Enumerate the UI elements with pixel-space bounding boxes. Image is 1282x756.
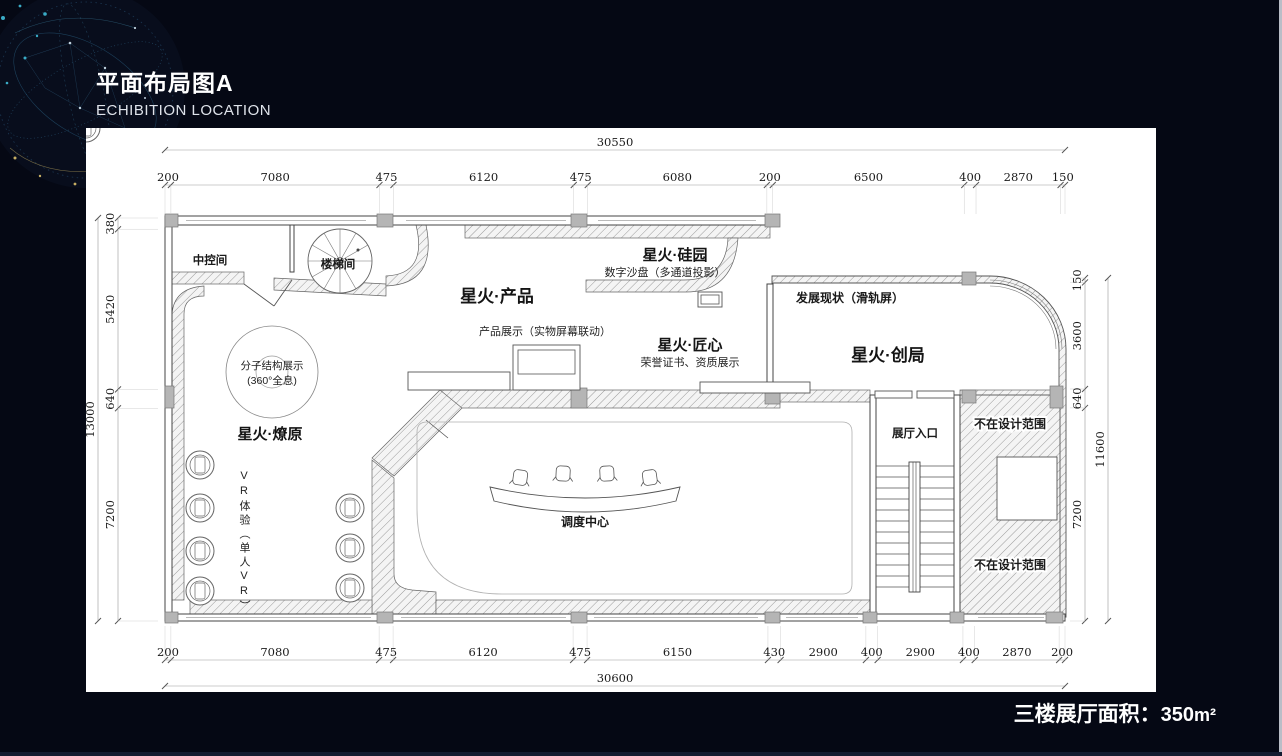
footer-area-label: 三楼展厅面积： xyxy=(1014,703,1161,726)
bottom-edge-strip xyxy=(0,752,1282,756)
footer-area-note: 三楼展厅面积：350m² xyxy=(1014,698,1216,728)
dispatch-console-desk xyxy=(490,487,680,512)
out-of-scope-inner-room xyxy=(997,457,1057,520)
label-dispatch-center: 调度中心 xyxy=(561,514,609,529)
dim-label: 200 xyxy=(759,170,781,184)
footer-area-unit: m² xyxy=(1194,705,1216,725)
dim-label: 11600 xyxy=(1093,431,1107,468)
dimension-column-right-segments: 15036006407200 xyxy=(1070,269,1088,624)
dim-label: 150 xyxy=(1052,170,1074,184)
room-label-control-room: 中控间 xyxy=(193,253,228,267)
honor-display-table xyxy=(700,382,810,393)
slide: 平面布局图A ECHIBITION LOCATION xyxy=(0,0,1282,756)
label-hall-entrance: 展厅入口 xyxy=(891,427,938,440)
console-chairs xyxy=(509,465,660,486)
dim-label: 7200 xyxy=(103,500,117,529)
page-title: 平面布局图A xyxy=(96,64,271,98)
dim-label: 380 xyxy=(103,213,117,235)
page-subtitle: ECHIBITION LOCATION xyxy=(96,102,271,119)
dim-label: 30600 xyxy=(597,671,634,685)
dim-label: 6120 xyxy=(468,645,497,659)
dimension-column-right-total: 11600 xyxy=(1093,275,1111,624)
dimension-row-bottom-segments: 2007080475612047561504302900400290040028… xyxy=(157,626,1073,663)
dim-label: 200 xyxy=(157,170,179,184)
dim-label: 5420 xyxy=(103,295,117,324)
dim-label: 7080 xyxy=(261,170,290,184)
label-molecule-display-line1: 分子结构展示 xyxy=(241,359,304,372)
dim-label: 475 xyxy=(569,645,591,659)
dim-label: 6120 xyxy=(469,170,498,184)
room-sublabel-digital-sandtable: 数字沙盘（多通道投影） xyxy=(605,265,726,279)
dim-label: 400 xyxy=(959,170,981,184)
dim-label: 475 xyxy=(570,170,592,184)
dim-label: 7080 xyxy=(260,645,289,659)
floor-plan-panel: 中控间 楼梯间 星火·产品 星火·硅园 数字沙盘（多通道投影） 发展现状（滑轨屏… xyxy=(86,128,1156,692)
dim-label: 640 xyxy=(1070,387,1084,409)
label-out-of-scope-2: 不在设计范围 xyxy=(974,557,1046,572)
hatched-walls-layer xyxy=(172,225,1066,617)
label-out-of-scope-1: 不在设计范围 xyxy=(974,416,1046,431)
dim-label: 200 xyxy=(157,645,179,659)
dim-label: 150 xyxy=(1070,269,1084,291)
room-sublabel-honor-certificates: 荣誉证书、资质展示 xyxy=(641,355,740,369)
display-table xyxy=(513,345,580,390)
dim-label: 200 xyxy=(1051,645,1073,659)
header: 平面布局图A ECHIBITION LOCATION xyxy=(96,64,271,119)
label-product-display: 产品展示（实物屏幕联动） xyxy=(479,324,611,338)
dim-label: 475 xyxy=(375,645,397,659)
room-label-stairwell: 楼梯间 xyxy=(321,257,356,271)
dim-label: 2870 xyxy=(1004,170,1033,184)
vr-chairs xyxy=(86,128,364,605)
dimension-row-top-total: 30550 xyxy=(162,135,1068,153)
dimension-row-top-segments: 20070804756120475608020065004002870150 xyxy=(157,170,1074,214)
label-molecule-display-line2: (360°全息) xyxy=(247,374,297,387)
room-label-xinghuo-chanpin: 星火·产品 xyxy=(460,286,534,306)
dim-label: 13000 xyxy=(86,401,97,438)
label-vr-experience: VR体验（单人VR） xyxy=(236,470,252,614)
molecule-display xyxy=(226,326,318,418)
dimension-column-left-segments: 38054206407200 xyxy=(103,213,158,624)
dim-label: 6500 xyxy=(854,170,883,184)
dim-label: 400 xyxy=(861,645,883,659)
room-label-xinghuo-chuangju: 星火·创局 xyxy=(851,345,925,365)
furniture-layer xyxy=(86,128,1057,605)
dim-label: 2900 xyxy=(906,645,935,659)
footer-area-value: 350 xyxy=(1161,704,1194,726)
dim-label: 6080 xyxy=(663,170,692,184)
dim-label: 475 xyxy=(375,170,397,184)
dim-label: 400 xyxy=(958,645,980,659)
dimension-column-left-total: 13000 xyxy=(86,215,101,624)
dim-label: 2900 xyxy=(809,645,838,659)
room-label-xinghuo-guiyuan: 星火·硅园 xyxy=(643,246,708,264)
dim-label: 6150 xyxy=(663,645,692,659)
display-table xyxy=(408,372,510,390)
label-development-status: 发展现状（滑轨屏） xyxy=(795,290,904,305)
dim-label: 430 xyxy=(763,645,785,659)
dimension-row-bottom-total: 30600 xyxy=(162,671,1068,689)
dim-label: 2870 xyxy=(1002,645,1031,659)
dim-label: 3600 xyxy=(1070,321,1084,350)
dim-label: 7200 xyxy=(1070,500,1084,529)
room-label-xinghuo-jiangxin: 星火·匠心 xyxy=(658,337,723,354)
dim-label: 30550 xyxy=(597,135,634,149)
entrance-staircase xyxy=(876,462,954,592)
room-label-xinghuo-liaoyuan: 星火·燎原 xyxy=(238,425,303,443)
wall-screen xyxy=(698,292,722,307)
dim-label: 640 xyxy=(103,388,117,410)
